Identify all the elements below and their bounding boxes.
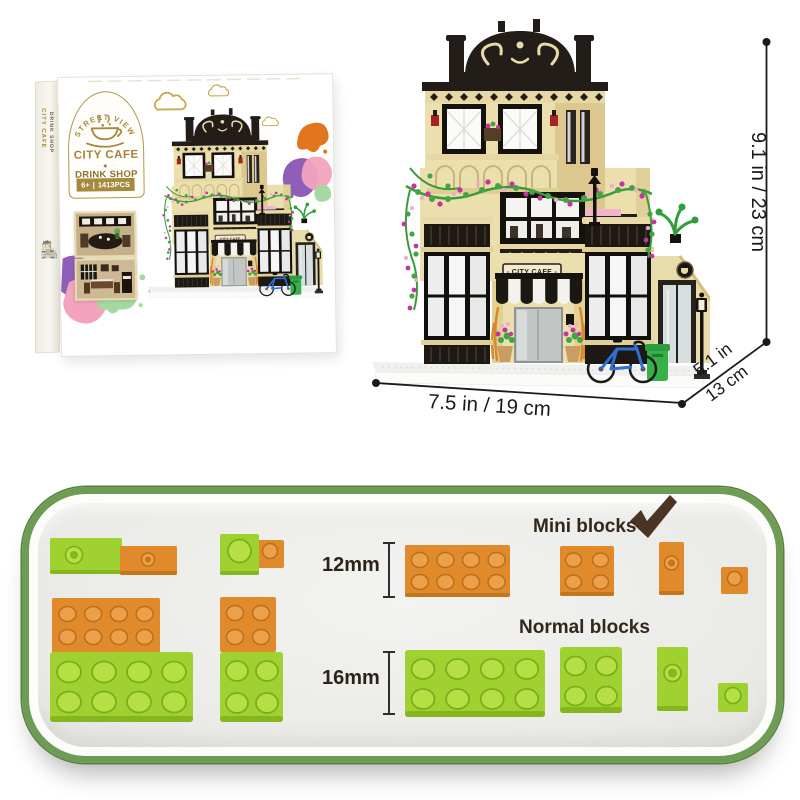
box-spine-building-art xyxy=(39,202,57,299)
box-spine-subtitle: DRINK SHOP xyxy=(48,112,54,154)
normal-height-label: 16mm xyxy=(322,667,380,690)
box-spine-title: CITY CAFE xyxy=(40,108,46,149)
product-box: CITY CAFE DRINK SHOP xyxy=(35,75,335,358)
age-badge: 6+ xyxy=(81,180,90,189)
assembled-model xyxy=(370,18,710,398)
mini-blocks-title: Mini blocks xyxy=(533,516,636,538)
cloud-icon xyxy=(209,85,229,96)
block-size-panel xyxy=(22,487,783,763)
logo-arc-text: STREET VIEW xyxy=(72,112,137,139)
normal-blocks-title: Normal blocks xyxy=(519,617,650,639)
piece-count: 1413PCS xyxy=(98,180,130,189)
box-building-art xyxy=(145,106,324,305)
interior-photo-2 xyxy=(75,258,138,301)
height-dimension-label: 9.1 in / 23 cm xyxy=(747,132,769,252)
badge-separator: | xyxy=(93,180,95,189)
logo-arc-art: STREET VIEW xyxy=(69,94,140,151)
interior-photo-1 xyxy=(74,211,137,258)
box-top-edge xyxy=(88,78,306,81)
cloud-icon xyxy=(155,92,186,109)
mini-height-label: 12mm xyxy=(322,554,380,577)
logo-title: CITY CAFE xyxy=(69,149,143,162)
box-spine: CITY CAFE DRINK SHOP xyxy=(35,80,60,353)
age-pieces-badge: 6+ | 1413PCS xyxy=(76,178,134,192)
box-front: STREET VIEW CITY CAFE · ◆ · DRINK SHOP xyxy=(57,73,337,357)
product-image: - CITY CAFE - xyxy=(0,0,800,800)
brand-logo: STREET VIEW CITY CAFE · ◆ · DRINK SHOP xyxy=(67,91,144,199)
